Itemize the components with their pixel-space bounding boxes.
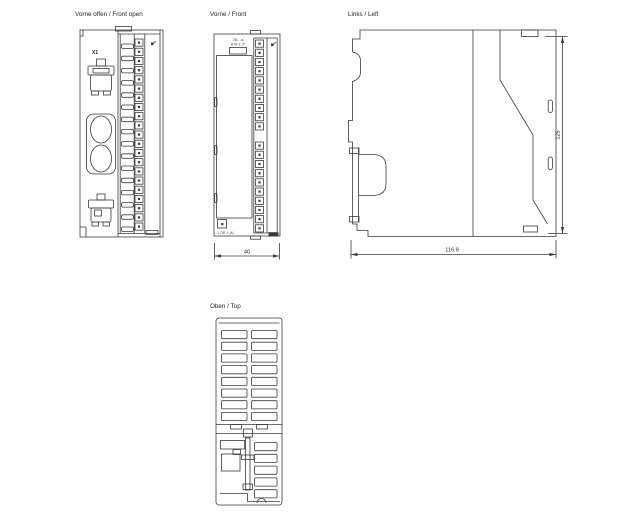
component-body (222, 454, 241, 471)
terminal-dot (258, 116, 260, 118)
vent-slot (252, 377, 278, 385)
vent-slot (252, 342, 278, 350)
corner-step (80, 30, 83, 36)
terminal-dot (138, 97, 140, 99)
connector-foot (104, 91, 111, 95)
terminal-dot (138, 69, 140, 71)
arrowhead (561, 227, 564, 234)
hole (91, 116, 112, 143)
connector-foot (103, 222, 110, 226)
pin-shaft (246, 438, 251, 490)
top-tab (251, 31, 261, 35)
vent-slot (222, 342, 248, 350)
connector-body (91, 75, 112, 91)
side-slot (548, 100, 552, 113)
terminal-dot (258, 125, 260, 127)
screw-slot (122, 166, 134, 171)
screw-slot (122, 142, 134, 147)
terminal-dot (138, 115, 140, 117)
outline-profile (349, 30, 557, 237)
terminal-dot (258, 154, 260, 156)
terminal-dot (258, 181, 260, 183)
bottom-step-line (220, 494, 280, 502)
left-view-label: Links / Left (348, 11, 379, 18)
vent-slot (252, 366, 278, 374)
band-tab (231, 425, 242, 430)
terminal-dot (138, 180, 140, 182)
door-hinge-bump (215, 98, 217, 107)
vent-slot (222, 377, 248, 385)
terminal-dot (138, 170, 140, 172)
bottom-rear-tab (524, 226, 538, 232)
connector-foot (92, 91, 99, 95)
screw-dot (271, 44, 274, 47)
terminal-dot (258, 145, 260, 147)
terminal-dot (138, 143, 140, 145)
terminal-dot (258, 172, 260, 174)
mounting-holes (87, 114, 116, 174)
connector-flange (89, 200, 114, 208)
terminal-dot (258, 209, 260, 211)
top-view-label: Oben / Top (210, 303, 241, 310)
terminal-contact-column (135, 39, 143, 230)
terminal-dot (258, 107, 260, 109)
screw-slot (122, 44, 134, 49)
screw-mark-icon (271, 42, 276, 46)
front-view: -7M- -a- A=6-2.!T :-L7!E-+-Al- 40 (214, 31, 280, 260)
terminal-dot (258, 163, 260, 165)
module-print-line1: -7M- -a- (231, 38, 244, 42)
front-connector-top (88, 59, 114, 95)
terminal-dot (138, 42, 140, 44)
side-slot (548, 157, 552, 170)
screw-slot (122, 81, 134, 86)
screw-slot (122, 178, 134, 183)
center-pin (242, 438, 255, 490)
latch-handle (359, 155, 386, 196)
screw-slot (122, 93, 134, 98)
left-view: 125 116.9 (349, 30, 568, 259)
terminal-dot (258, 227, 260, 229)
connector-flange (88, 66, 114, 75)
terminal-dot (138, 207, 140, 209)
connector-stem (97, 59, 106, 66)
screw-slot (122, 117, 134, 122)
width-dimension-value: 40 (244, 250, 250, 256)
terminal-dot (138, 152, 140, 154)
terminal-dot (138, 106, 140, 108)
center-notch (244, 429, 253, 437)
vent-slot (255, 443, 278, 451)
label-window (230, 48, 247, 55)
vent-slot (222, 366, 248, 374)
vent-slot (255, 466, 278, 474)
screw-tick (154, 41, 156, 43)
top-rear-tab (522, 30, 539, 37)
vent-slot (222, 354, 248, 362)
vent-slot (222, 401, 248, 409)
vent-slot (252, 354, 278, 362)
screw-slot (122, 227, 134, 232)
connector-detail (95, 210, 102, 216)
door-hinge-bump (215, 146, 217, 155)
vent-column-left (222, 331, 248, 421)
latch-stop (350, 217, 360, 223)
terminal-dot (258, 79, 260, 81)
vent-slot (255, 478, 278, 486)
outline (214, 34, 280, 236)
order-print: :-L7!E-+-Al- (216, 231, 235, 235)
vent-slot (255, 454, 278, 462)
terminal-dot (138, 198, 140, 200)
front-connector-bottom (89, 194, 114, 226)
terminal-dot (138, 60, 140, 62)
terminal-dot (221, 223, 223, 225)
drawing-canvas: Vorne offen / Front open Vorne / Front L… (0, 0, 640, 518)
terminal-dot (258, 43, 260, 45)
terminal-contact-group-upper (256, 40, 264, 130)
screw-slot (122, 68, 134, 73)
terminal-dot (258, 89, 260, 91)
bottom-tab (251, 236, 261, 239)
terminal-dot (258, 98, 260, 100)
terminal-dot (138, 226, 140, 228)
latch-stop (350, 148, 360, 154)
outline (216, 318, 282, 505)
vent-column-right-lower (255, 443, 278, 498)
terminal-dot (258, 70, 260, 72)
front-view-label: Vorne / Front (210, 11, 247, 18)
screw-slot (122, 105, 134, 110)
terminal-dot (138, 88, 140, 90)
screw-slot (122, 203, 134, 208)
front-bevel-profile (500, 30, 548, 224)
pin-crossbar (242, 455, 255, 460)
top-view (216, 318, 282, 505)
pin-base (243, 484, 253, 490)
terminal-contact-group-lower (256, 142, 264, 232)
hole (91, 145, 112, 172)
vent-slot (252, 331, 278, 339)
terminal-dot (138, 189, 140, 191)
vent-slot (222, 412, 248, 420)
internal-component (222, 450, 241, 472)
terminal-dot (138, 161, 140, 163)
connector-x1-label: X1 (92, 50, 98, 56)
connector-slot (93, 69, 109, 74)
screw-dot (151, 43, 154, 46)
arrowhead (550, 253, 557, 256)
vent-slot (222, 389, 248, 397)
front-open-view: X1 (80, 27, 163, 238)
depth-dimension: 116.9 (351, 240, 556, 259)
arrowhead (215, 254, 222, 257)
screw-slot (122, 129, 134, 134)
terminal-dot (138, 78, 140, 80)
screw-slot (122, 154, 134, 159)
module-print-line2: A=6-2.!T (231, 43, 245, 47)
door-hinge-bump (215, 194, 217, 203)
screw-slot (122, 190, 134, 195)
terminal-dot (138, 134, 140, 136)
screw-tick (274, 42, 276, 44)
terminal-dot (258, 191, 260, 193)
vent-slot (221, 441, 245, 450)
connector-stem (97, 194, 105, 200)
screw-slot-column (122, 44, 134, 232)
screw-slot (122, 56, 134, 61)
corner-step (80, 227, 86, 237)
band-tab (257, 425, 268, 430)
module-dimension-drawing: Vorne offen / Front open Vorne / Front L… (0, 0, 640, 518)
terminal-dot (138, 124, 140, 126)
terminal-dot (138, 216, 140, 218)
screw-mark-icon (151, 41, 156, 45)
bottom-dome (257, 499, 266, 504)
terminal-dot (258, 61, 260, 63)
terminal-dot (138, 51, 140, 53)
front-open-view-label: Vorne offen / Front open (75, 11, 143, 18)
arrowhead (561, 37, 564, 44)
front-door (217, 56, 253, 219)
arrowhead (273, 254, 280, 257)
terminal-dot (258, 218, 260, 220)
din-rail-latch (350, 148, 387, 222)
vent-slot (255, 490, 278, 498)
height-dimension-value: 125 (556, 130, 562, 139)
connector-foot (92, 222, 99, 226)
terminal-dot (258, 200, 260, 202)
arrowhead (351, 253, 358, 256)
width-dimension: 40 (215, 243, 280, 260)
terminal-dot (258, 52, 260, 54)
screw-slot (122, 215, 134, 220)
vent-slot (252, 412, 278, 420)
depth-dimension-value: 116.9 (445, 248, 459, 254)
vent-slot (252, 401, 278, 409)
hole-frame (87, 114, 116, 174)
vent-slot (252, 389, 278, 397)
vent-slot (222, 331, 248, 339)
vent-column-right (252, 331, 278, 421)
bottom-dark-block (269, 232, 279, 236)
